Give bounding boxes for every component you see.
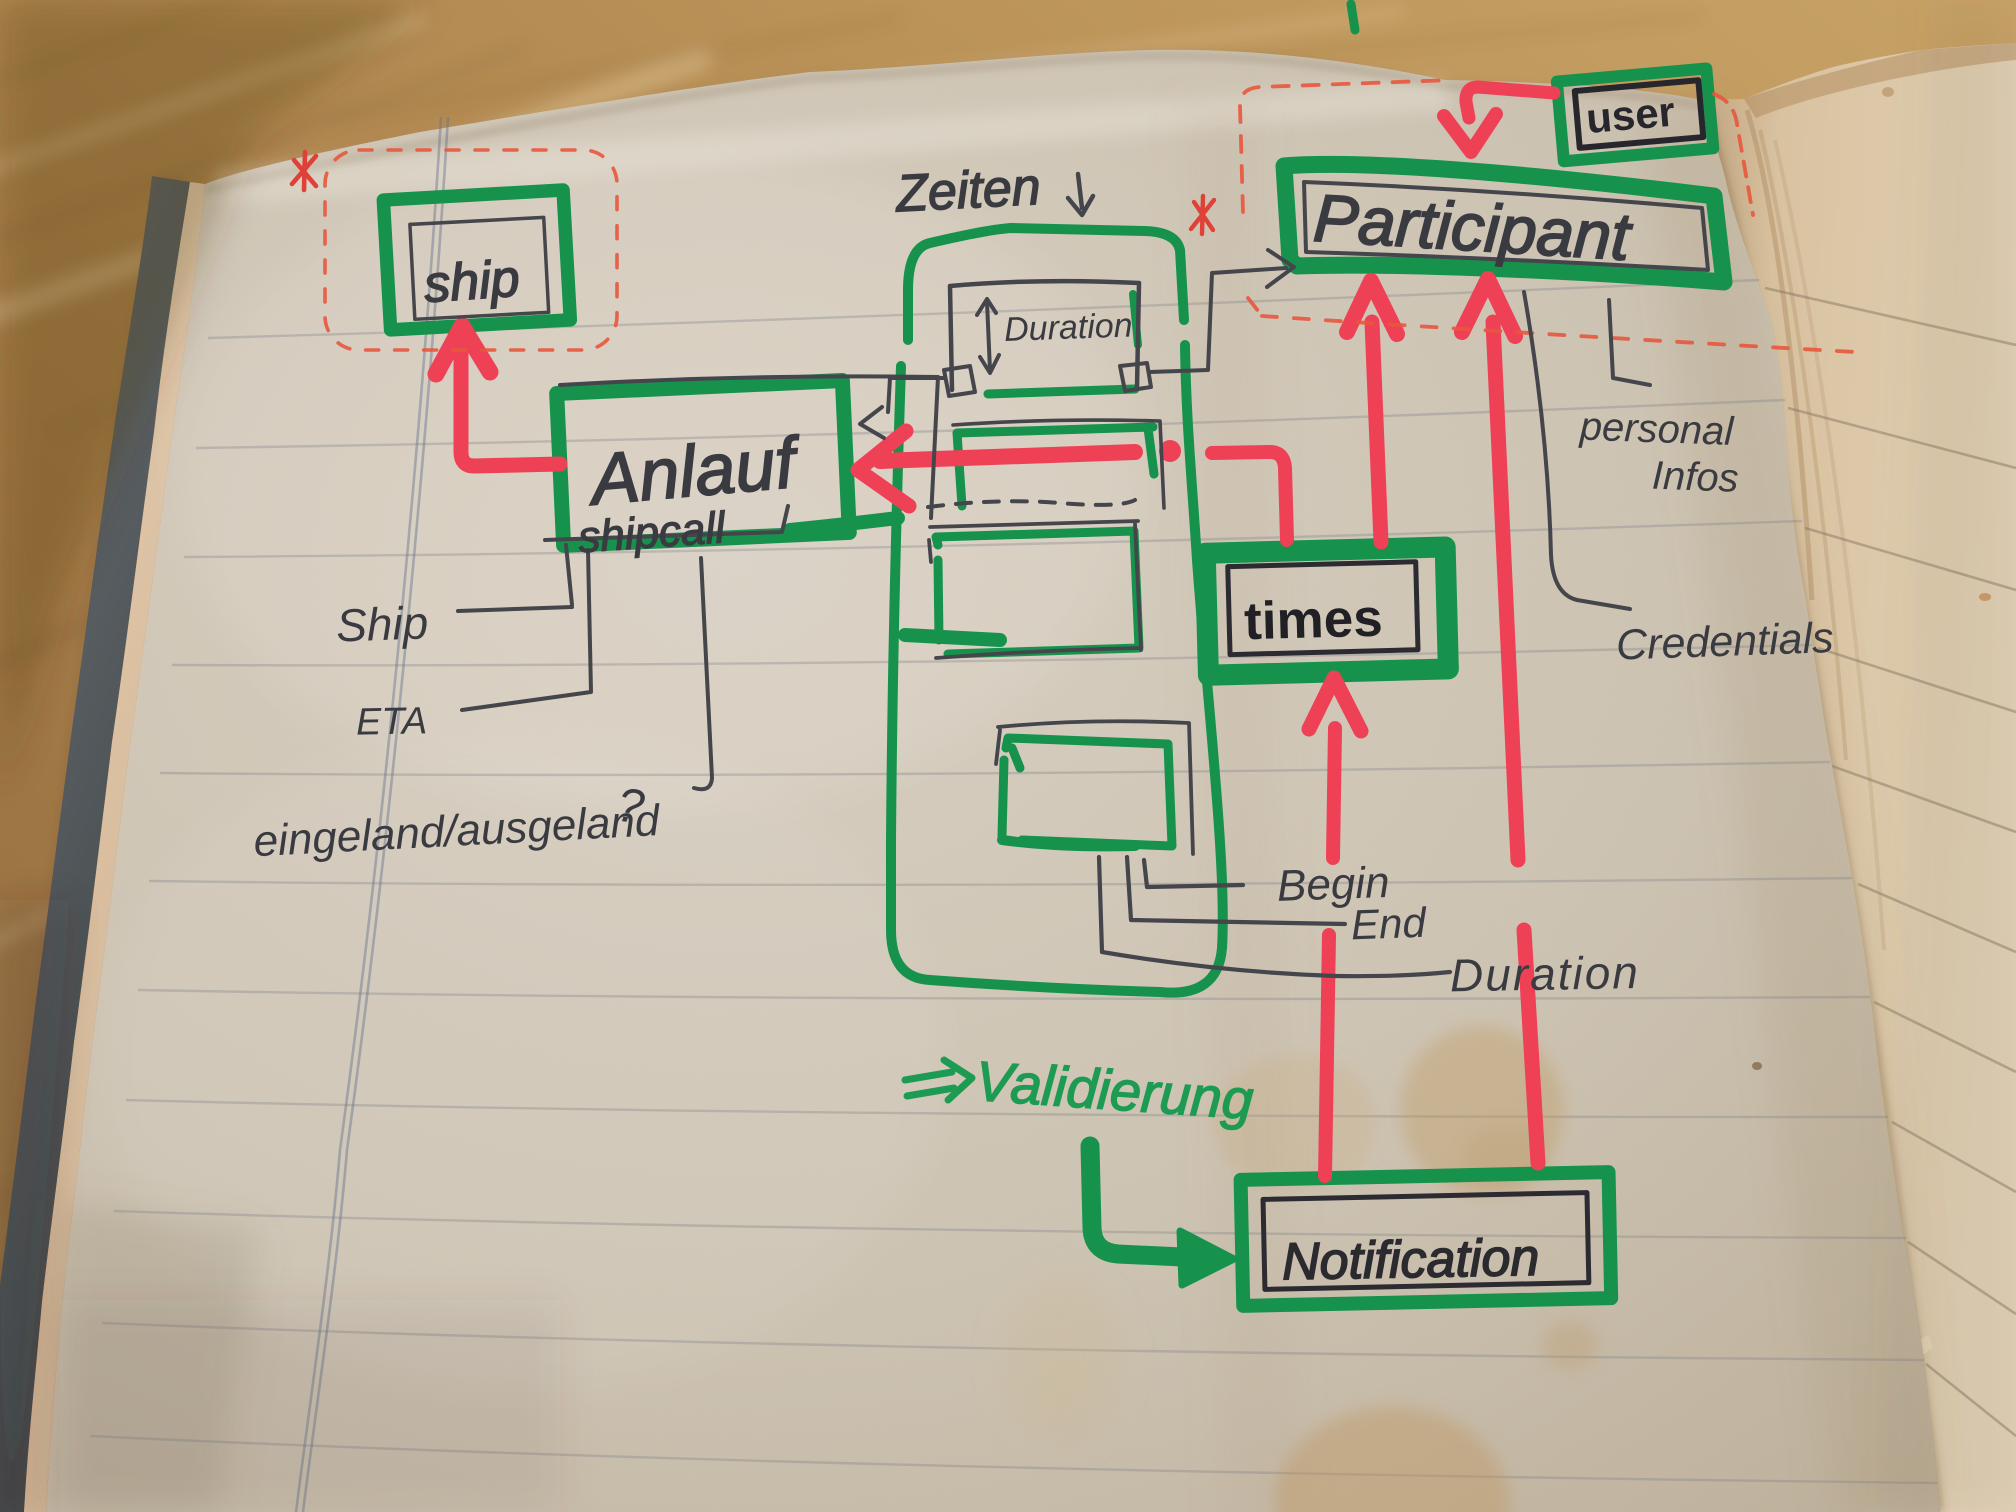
svg-text:user: user xyxy=(1584,88,1676,143)
svg-text:times: times xyxy=(1243,589,1383,652)
svg-text:Infos: Infos xyxy=(1651,454,1739,501)
svg-text:Credentials: Credentials xyxy=(1615,614,1834,670)
svg-text:ETA: ETA xyxy=(356,700,428,743)
svg-text:Ship: Ship xyxy=(335,596,429,651)
svg-text:Duration: Duration xyxy=(1003,306,1133,348)
svg-text:Zeiten: Zeiten xyxy=(893,158,1042,224)
svg-text:ship: ship xyxy=(422,250,521,315)
svg-text:personal: personal xyxy=(1578,405,1735,454)
svg-text:shipcall: shipcall xyxy=(577,503,728,562)
svg-text:End: End xyxy=(1350,899,1428,949)
svg-text:Notification: Notification xyxy=(1282,1229,1540,1291)
svg-text:Duration: Duration xyxy=(1450,946,1641,1001)
